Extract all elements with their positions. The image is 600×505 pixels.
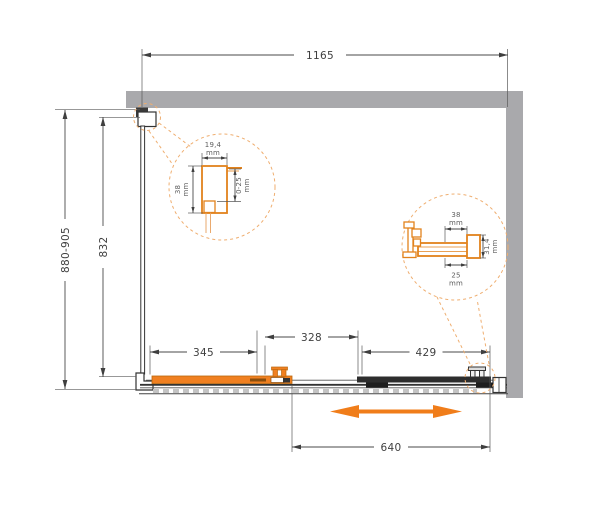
unit-label: mm: [182, 182, 190, 196]
detail-label-bracket-width: 38: [451, 211, 460, 219]
dim-label-segment-right: 429: [416, 347, 437, 359]
detail-label-bracket-height: 31,4: [483, 238, 491, 255]
detail-dim-bracket-width: 38 mm: [445, 211, 467, 242]
dim-label-glass-height: 832: [98, 237, 110, 258]
unit-label: mm: [491, 239, 499, 253]
detail-label-profile-width: 19,4: [205, 141, 222, 149]
detail-dim-profile-depth: 38 mm: [174, 166, 203, 213]
unit-label: mm: [206, 149, 220, 157]
detail-label-adjustment: 0-25: [235, 177, 243, 194]
detail-label-bracket-depth: 25: [451, 272, 460, 280]
wall-profile-top: [138, 112, 156, 127]
sliding-door-panel: [152, 367, 292, 384]
dim-label-segment-middle: 328: [301, 332, 322, 344]
detail-callout-right: 38 mm 25 mm 31,4 mm: [402, 194, 508, 393]
dim-label-opening: 640: [381, 442, 402, 454]
drawing-canvas: 1165 880-905 832: [0, 0, 600, 505]
wall-bracket-section: [467, 235, 480, 258]
unit-label: mm: [449, 280, 463, 288]
roller-block-right: [476, 383, 493, 388]
detail-dim-bracket-depth: 25 mm: [445, 258, 467, 288]
right-wall: [506, 108, 523, 398]
dim-label-segment-left: 345: [193, 347, 214, 359]
detail-dim-profile-width: 19,4 mm: [202, 141, 227, 165]
top-wall: [126, 91, 523, 108]
dim-label-height-range: 880-905: [60, 227, 72, 273]
detail-label-profile-depth: 38: [174, 185, 182, 194]
detail-dim-bracket-height: 31,4 mm: [480, 235, 499, 258]
unit-label: mm: [449, 219, 463, 227]
roller-block-left: [366, 383, 388, 388]
technical-drawing-shower-enclosure: 1165 880-905 832: [0, 0, 600, 505]
dimension-segment-left: 345: [150, 346, 257, 359]
unit-label: mm: [243, 178, 251, 192]
slide-direction-arrow: [330, 405, 462, 418]
side-glass-panel: [136, 108, 156, 391]
dimension-glass-height: 832: [95, 117, 140, 377]
wall-bracket: [469, 367, 486, 371]
dim-label-width-total: 1165: [306, 50, 334, 62]
dimension-opening: 640: [292, 441, 490, 454]
dimension-segment-right: 429: [362, 346, 490, 359]
profile-notch: [204, 201, 215, 213]
glass-panel-line: [141, 126, 145, 374]
dimension-segment-middle: 328: [265, 331, 358, 344]
